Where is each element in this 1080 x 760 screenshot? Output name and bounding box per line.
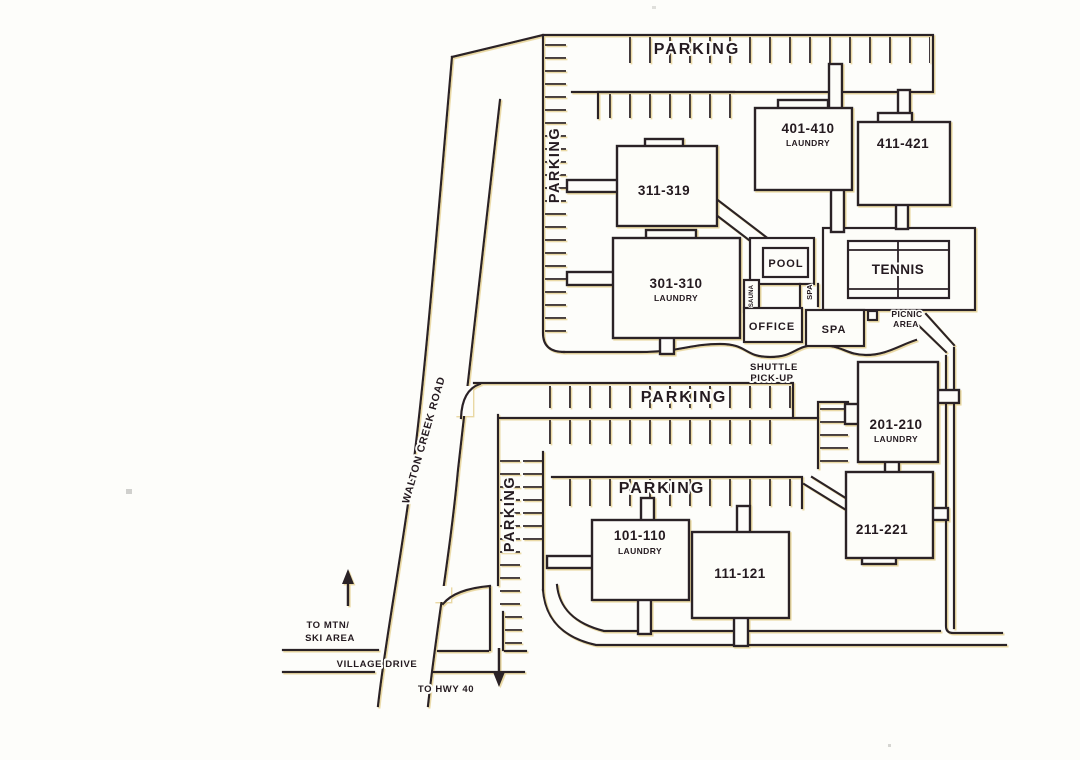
- label-to-mtn-1: TO MTN/: [306, 620, 349, 631]
- label-building-301-310: 301-310: [649, 276, 702, 291]
- label-spa: SPA: [822, 324, 847, 336]
- label-shuttle-2: PICK-UP: [750, 373, 793, 384]
- label-building-401-410: 401-410: [781, 121, 834, 136]
- parking-label-lower: PARKING: [619, 480, 706, 497]
- label-laundry-401: LAUNDRY: [786, 138, 830, 148]
- label-picnic-area-2: AREA: [893, 319, 919, 329]
- site-map-page: PARKING PARKING PARKING PARKING PARKING …: [0, 0, 1080, 760]
- label-pool: POOL: [768, 258, 803, 270]
- building-101-110: [547, 498, 689, 634]
- label-shuttle-1: SHUTTLE: [750, 362, 798, 373]
- label-to-hwy: TO HWY 40: [418, 684, 474, 695]
- label-building-311-319: 311-319: [638, 183, 690, 198]
- label-picnic-area-1: PICNIC: [891, 309, 922, 319]
- label-building-211-221: 211-221: [856, 522, 908, 537]
- label-to-mtn-2: SKI AREA: [305, 633, 355, 644]
- label-village-drive: VILLAGE DRIVE: [337, 659, 418, 670]
- arrow-up-to-ski-icon: [342, 569, 354, 606]
- label-laundry-201: LAUNDRY: [874, 434, 918, 444]
- label-walton-creek-road: WALTON CREEK ROAD: [400, 375, 448, 505]
- label-sauna: SAUNA: [749, 284, 755, 307]
- building-211-221: [846, 472, 948, 564]
- label-spa-corridor: SPA: [805, 284, 814, 300]
- parking-label-left-lower: PARKING: [502, 476, 518, 552]
- exit-driveway: [443, 586, 503, 650]
- site-map: PARKING PARKING PARKING PARKING PARKING …: [0, 0, 1080, 760]
- label-building-111-121: 111-121: [714, 566, 766, 581]
- label-office: OFFICE: [749, 321, 795, 333]
- building-401-410: [755, 64, 852, 232]
- building-411-421: [858, 90, 950, 229]
- label-laundry-301: LAUNDRY: [654, 293, 698, 303]
- building-301-310: [567, 230, 740, 354]
- parking-label-middle: PARKING: [641, 389, 728, 406]
- picnic-marker-icon: [868, 311, 877, 320]
- label-building-201-210: 201-210: [869, 417, 922, 432]
- label-building-411-421: 411-421: [877, 136, 929, 151]
- walkway-to-211: [804, 477, 852, 510]
- arrow-down-to-hwy-icon: [493, 648, 505, 687]
- label-building-101-110: 101-110: [614, 528, 666, 543]
- label-tennis: TENNIS: [872, 262, 925, 277]
- picnic-path: [915, 314, 954, 352]
- label-laundry-101: LAUNDRY: [618, 546, 662, 556]
- parking-label-left-upper: PARKING: [547, 127, 563, 203]
- parking-label-top: PARKING: [654, 41, 741, 58]
